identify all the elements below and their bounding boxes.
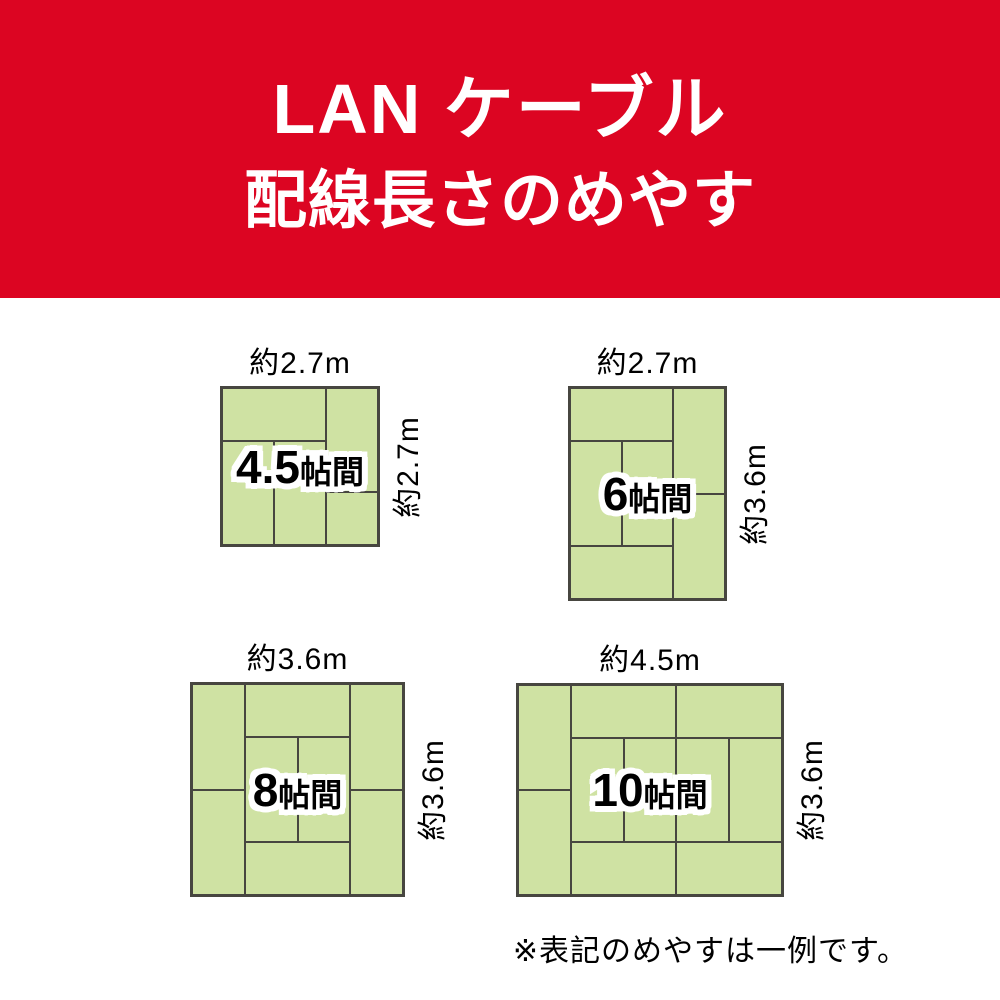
tatami-room-6jo: 約2.7m約3.6m6帖間6帖間: [568, 386, 727, 601]
tatami-mat-line: [571, 545, 673, 547]
room-size-label-text: 6帖間: [603, 471, 693, 517]
tatami-mat-line: [519, 789, 571, 791]
room-size-label-text: 8帖間: [253, 767, 343, 813]
room-width-label: 約4.5m: [599, 635, 701, 679]
room-width-label: 約2.7m: [249, 338, 351, 382]
room-size-label-text: 10帖間: [592, 767, 707, 813]
footnote: ※表記のめやすは一例です。: [513, 926, 908, 970]
room-size-unit: 帖間: [644, 777, 708, 813]
room-size-value: 10: [592, 764, 643, 816]
room-size-label: 4.5帖間4.5帖間: [236, 444, 364, 490]
room-size-unit: 帖間: [278, 777, 342, 813]
tatami-room-10jo: 約4.5m約3.6m10帖間10帖間: [516, 683, 784, 897]
tatami-mat-line: [245, 841, 350, 843]
tatami-room-8jo: 約3.6m約3.6m8帖間8帖間: [190, 682, 405, 897]
room-size-value: 8: [253, 764, 279, 816]
tatami-mat-line: [571, 737, 781, 739]
room-size-label-text: 4.5帖間: [236, 444, 364, 490]
room-size-unit: 帖間: [628, 481, 692, 517]
room-width-label: 約3.6m: [247, 634, 349, 678]
room-height-label: 約2.7m: [383, 416, 427, 518]
room-size-unit: 帖間: [300, 454, 364, 490]
room-height-label: 約3.6m: [787, 739, 831, 841]
tatami-mat-line: [571, 841, 781, 843]
room-height-label-box: 約2.7m: [377, 389, 433, 544]
room-height-label: 約3.6m: [408, 739, 452, 841]
room-size-label: 6帖間6帖間: [603, 471, 693, 517]
room-size-label: 8帖間8帖間: [253, 767, 343, 813]
tatami-mat-line: [193, 789, 245, 791]
room-height-label: 約3.6m: [730, 443, 774, 545]
room-size-value: 6: [603, 468, 629, 520]
room-height-label-box: 約3.6m: [781, 686, 837, 894]
tatami-mat-line: [571, 440, 673, 442]
room-size-value: 4.5: [236, 441, 300, 493]
room-height-label-box: 約3.6m: [724, 389, 780, 598]
rooms-layer: 約2.7m約2.7m4.5帖間4.5帖間約2.7m約3.6m6帖間6帖間約3.6…: [0, 0, 1000, 1000]
room-height-label-box: 約3.6m: [402, 685, 458, 894]
tatami-room-4-5jo: 約2.7m約2.7m4.5帖間4.5帖間: [220, 386, 380, 547]
room-width-label: 約2.7m: [597, 338, 699, 382]
room-size-label: 10帖間10帖間: [592, 767, 707, 813]
tatami-mat-line: [245, 736, 350, 738]
tatami-mat-line: [350, 789, 402, 791]
tatami-mat-line: [728, 738, 730, 842]
tatami-mat-line: [326, 491, 377, 493]
